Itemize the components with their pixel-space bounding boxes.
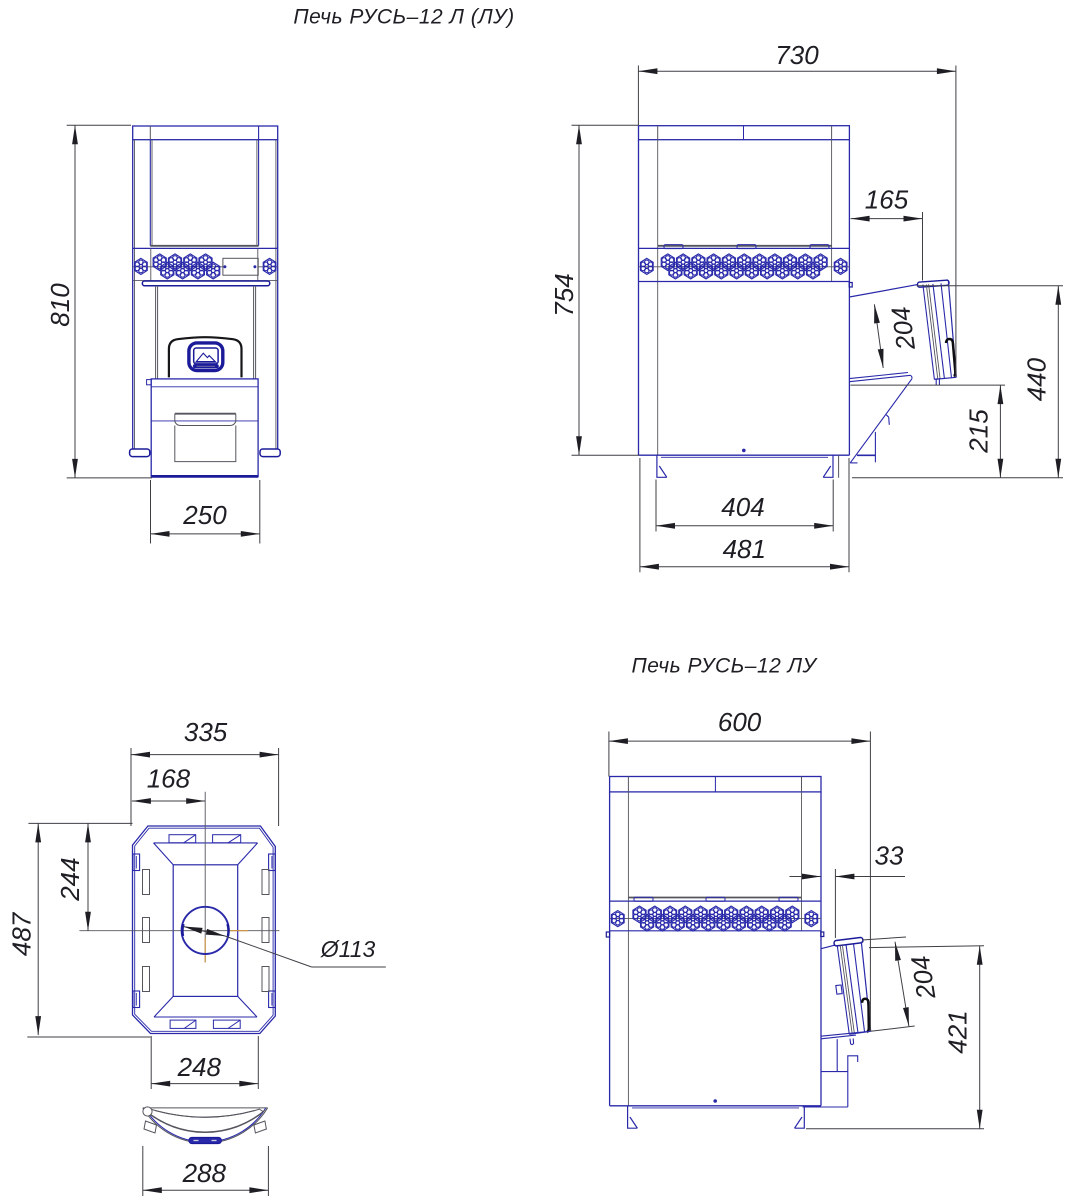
svg-text:Печь РУСЬ–12 ЛУ: Печь РУСЬ–12 ЛУ <box>632 655 819 678</box>
svg-text:248: 248 <box>177 1052 222 1082</box>
svg-text:204: 204 <box>885 305 921 353</box>
svg-text:754: 754 <box>549 273 579 316</box>
svg-text:215: 215 <box>964 409 994 454</box>
svg-text:33: 33 <box>875 841 904 871</box>
svg-text:730: 730 <box>775 40 819 70</box>
svg-text:288: 288 <box>182 1158 227 1188</box>
svg-text:Ø113: Ø113 <box>320 936 376 962</box>
svg-text:810: 810 <box>45 283 75 327</box>
svg-text:Печь РУСЬ–12 Л (ЛУ): Печь РУСЬ–12 Л (ЛУ) <box>293 6 514 29</box>
svg-text:168: 168 <box>147 764 191 794</box>
svg-text:335: 335 <box>184 717 228 747</box>
svg-text:421: 421 <box>943 1010 973 1053</box>
svg-text:404: 404 <box>721 492 764 522</box>
svg-text:487: 487 <box>7 911 37 956</box>
svg-text:481: 481 <box>723 534 766 564</box>
svg-text:250: 250 <box>182 500 227 530</box>
svg-text:600: 600 <box>718 707 762 737</box>
svg-text:440: 440 <box>1022 357 1052 401</box>
svg-text:165: 165 <box>865 185 909 215</box>
svg-text:244: 244 <box>55 857 85 901</box>
